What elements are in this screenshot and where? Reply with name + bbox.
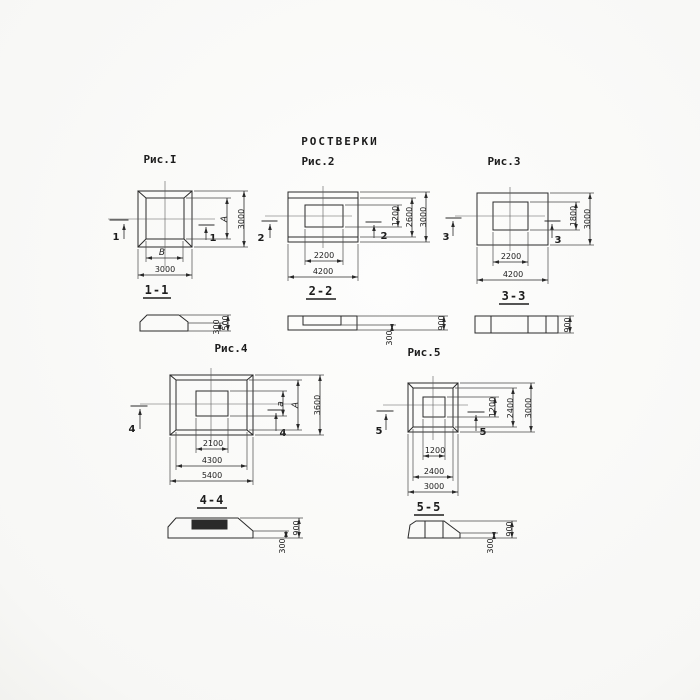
fig1-dim-width-inner: B bbox=[159, 248, 165, 258]
fig2-dim-height-mid: 2600 bbox=[405, 207, 414, 227]
fig4-dim-height-mid: A bbox=[291, 402, 301, 409]
fig5-section-body bbox=[408, 521, 460, 538]
fig2-plan: 2 2 1200 2600 3000 2200 4200 bbox=[258, 186, 430, 281]
fig5-dim-height-inner: 1200 bbox=[488, 397, 497, 417]
fig2-dim-width-outer: 4200 bbox=[313, 267, 333, 276]
figure-1: Рис.I 1 1 B 3000 A 3000 1-1 bbox=[108, 153, 248, 335]
fig2-cut-label-right: 2 bbox=[381, 231, 388, 242]
fig4-section-dim-edge: 300 bbox=[278, 538, 287, 553]
fig1-dim-height-outer: 3000 bbox=[237, 209, 246, 229]
fig1-section-body bbox=[140, 315, 188, 331]
fig5-section: 300 900 bbox=[408, 521, 517, 554]
fig5-section-dim-total: 900 bbox=[505, 521, 514, 536]
fig3-cut-label-right: 3 bbox=[555, 235, 562, 246]
fig3-label: Рис.3 bbox=[487, 155, 520, 168]
fig2-section-dim-edge: 300 bbox=[385, 330, 394, 345]
fig4-centerlines bbox=[140, 368, 292, 443]
figure-5: Рис.5 5 5 1200 2400 3000 1200 bbox=[376, 346, 535, 554]
fig1-section-title: 1-1 bbox=[145, 283, 170, 297]
fig5-dim-height-outer: 3000 bbox=[524, 398, 533, 418]
fig3-plan-outline bbox=[477, 193, 548, 245]
fig2-dim-width-inner: 2200 bbox=[314, 251, 334, 260]
fig5-cut-label-left: 5 bbox=[376, 426, 383, 437]
fig1-dim-width-outer: 3000 bbox=[155, 265, 175, 274]
fig2-section: 300 900 bbox=[288, 315, 448, 345]
fig5-plan: 5 5 1200 2400 3000 1200 2400 3000 bbox=[376, 376, 535, 496]
drawing-canvas: РОСТВЕРКИ Рис.I 1 1 B 3000 A 3000 bbox=[0, 0, 700, 700]
fig2-section-title: 2-2 bbox=[309, 284, 334, 298]
fig5-cut-label-right: 5 bbox=[480, 427, 487, 438]
fig1-cut-label-left: 1 bbox=[113, 232, 120, 243]
fig3-section: 900 bbox=[475, 316, 574, 333]
fig3-section-title: 3-3 bbox=[502, 289, 527, 303]
fig5-section-dim-edge: 300 bbox=[486, 538, 495, 553]
fig2-dim-height-outer: 3000 bbox=[419, 207, 428, 227]
fig4-dim-height-outer: 3600 bbox=[313, 395, 322, 415]
fig3-plan: 3 3 1800 3000 2200 4200 bbox=[443, 187, 594, 284]
fig4-dim-width-inner: 2100 bbox=[203, 439, 223, 448]
fig4-dim-height-inner: a bbox=[276, 401, 286, 407]
fig1-section: 300 500 bbox=[140, 315, 231, 335]
figure-3: Рис.3 3 3 1800 3000 2200 4200 3-3 bbox=[443, 155, 594, 333]
fig1-section-dim-total: 500 bbox=[221, 315, 230, 330]
fig4-cut-label-left: 4 bbox=[129, 424, 136, 435]
fig4-plan-recess bbox=[196, 391, 228, 416]
fig5-label: Рис.5 bbox=[407, 346, 440, 359]
fig3-dim-width-inner: 2200 bbox=[501, 252, 521, 261]
fig3-dim-height-inner: 1800 bbox=[569, 206, 578, 226]
fig2-label: Рис.2 bbox=[301, 155, 334, 168]
fig4-label: Рис.4 bbox=[214, 342, 247, 355]
fig2-section-dim-total: 900 bbox=[437, 315, 446, 330]
drawing-sheet: РОСТВЕРКИ Рис.I 1 1 B 3000 A 3000 bbox=[0, 0, 700, 700]
fig1-label: Рис.I bbox=[143, 153, 176, 166]
fig3-section-dim-total: 900 bbox=[563, 317, 572, 332]
fig4-dim-width-mid: 4300 bbox=[202, 456, 222, 465]
fig2-dim-height-inner: 1200 bbox=[391, 206, 400, 226]
fig5-dim-height-mid: 2400 bbox=[506, 398, 515, 418]
fig3-centerlines bbox=[455, 187, 545, 251]
fig4-section-recess bbox=[192, 520, 227, 529]
fig3-dim-width-outer: 4200 bbox=[503, 270, 523, 279]
drawing-title: РОСТВЕРКИ bbox=[301, 135, 379, 148]
fig3-dim-height-outer: 3000 bbox=[583, 209, 592, 229]
fig2-section-body bbox=[288, 316, 357, 330]
fig4-section-title: 4-4 bbox=[200, 493, 225, 507]
fig4-plan-outline bbox=[170, 375, 253, 435]
fig4-plan-inner bbox=[176, 380, 247, 430]
fig2-centerlines bbox=[265, 186, 352, 248]
figure-4: Рис.4 4 4 a A 3600 2100 43 bbox=[129, 342, 324, 554]
fig5-dim-width-mid: 2400 bbox=[424, 467, 444, 476]
fig5-dim-width-inner: 1200 bbox=[425, 446, 445, 455]
fig1-plan: 1 1 B 3000 A 3000 bbox=[108, 181, 248, 279]
fig3-cut-label-left: 3 bbox=[443, 232, 450, 243]
figure-2: Рис.2 2 2 1200 2600 3000 2200 420 bbox=[258, 155, 448, 346]
fig4-section: 300 900 bbox=[168, 518, 303, 554]
fig4-plan: 4 4 a A 3600 2100 4300 5400 bbox=[129, 368, 324, 485]
fig1-cut-label-right: 1 bbox=[210, 233, 217, 244]
fig2-cut-label-left: 2 bbox=[258, 233, 265, 244]
fig5-section-title: 5-5 bbox=[417, 500, 442, 514]
fig5-dim-width-outer: 3000 bbox=[424, 482, 444, 491]
fig5-plan-recess bbox=[423, 397, 445, 417]
fig4-section-dim-total: 900 bbox=[292, 520, 301, 535]
fig4-dim-width-outer: 5400 bbox=[202, 471, 222, 480]
fig1-section-dim-edge: 300 bbox=[212, 319, 221, 334]
fig1-dim-height-inner: A bbox=[220, 216, 230, 223]
